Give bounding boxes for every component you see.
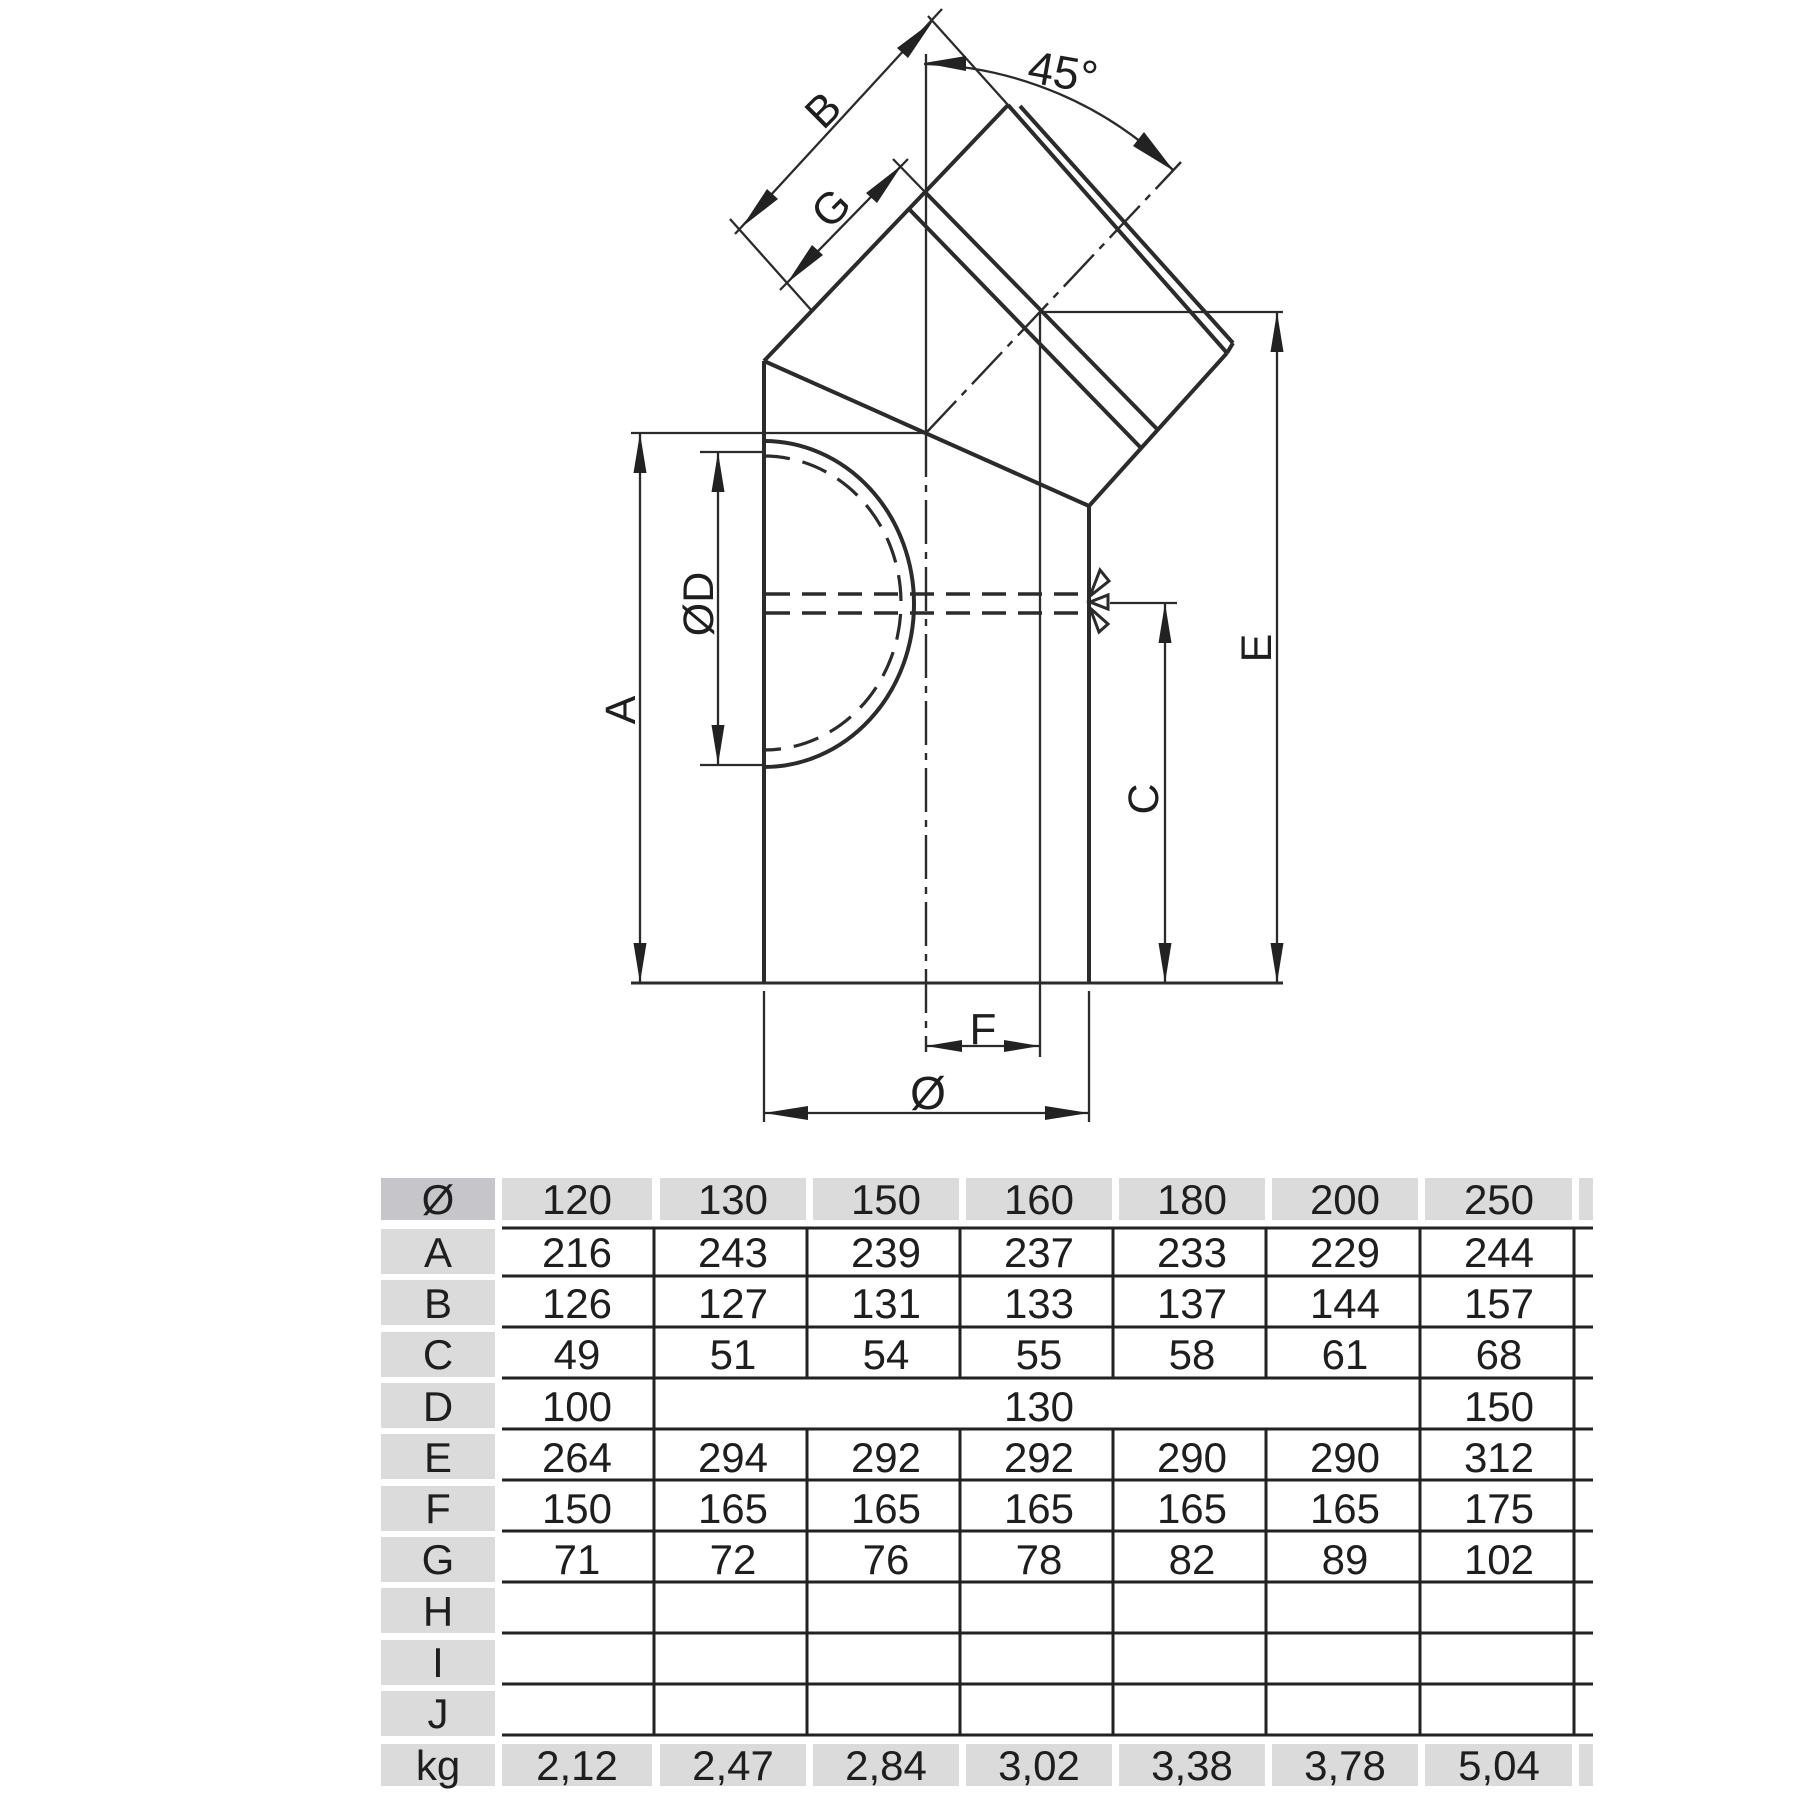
svg-text:237: 237 [1004,1229,1074,1276]
svg-text:68: 68 [1476,1331,1523,1378]
svg-text:144: 144 [1310,1280,1380,1327]
svg-text:5,04: 5,04 [1458,1742,1540,1789]
svg-text:3,02: 3,02 [998,1742,1080,1789]
svg-text:78: 78 [1016,1536,1063,1583]
svg-text:ØD: ØD [675,572,723,637]
svg-text:2,84: 2,84 [845,1742,927,1789]
svg-text:B: B [424,1280,452,1327]
svg-text:F: F [425,1485,451,1532]
svg-text:E: E [424,1434,452,1481]
svg-text:292: 292 [851,1434,921,1481]
svg-text:Ø: Ø [910,1067,946,1119]
svg-text:100: 100 [542,1383,612,1430]
svg-text:72: 72 [710,1536,757,1583]
svg-text:200: 200 [1310,1176,1380,1223]
svg-text:C: C [423,1331,453,1378]
svg-text:290: 290 [1310,1434,1380,1481]
svg-text:71: 71 [554,1536,601,1583]
svg-text:130: 130 [1004,1383,1074,1430]
svg-text:49: 49 [554,1331,601,1378]
svg-text:175: 175 [1464,1485,1534,1532]
svg-text:250: 250 [1464,1176,1534,1223]
svg-text:233: 233 [1157,1229,1227,1276]
svg-text:229: 229 [1310,1229,1380,1276]
svg-text:165: 165 [1157,1485,1227,1532]
svg-text:I: I [432,1639,444,1686]
svg-text:3,38: 3,38 [1151,1742,1233,1789]
svg-text:157: 157 [1464,1280,1534,1327]
svg-text:2,12: 2,12 [536,1742,618,1789]
svg-text:89: 89 [1322,1536,1369,1583]
svg-text:150: 150 [1464,1383,1534,1430]
svg-text:127: 127 [698,1280,768,1327]
svg-text:Ø: Ø [422,1176,455,1223]
svg-text:130: 130 [698,1176,768,1223]
svg-text:180: 180 [1157,1176,1227,1223]
svg-text:A: A [597,695,645,724]
svg-text:165: 165 [698,1485,768,1532]
svg-text:239: 239 [851,1229,921,1276]
svg-text:61: 61 [1322,1331,1369,1378]
svg-text:312: 312 [1464,1434,1534,1481]
svg-text:133: 133 [1004,1280,1074,1327]
svg-text:137: 137 [1157,1280,1227,1327]
svg-text:3,78: 3,78 [1304,1742,1386,1789]
svg-text:131: 131 [851,1280,921,1327]
svg-text:216: 216 [542,1229,612,1276]
svg-text:E: E [1233,634,1281,663]
svg-text:kg: kg [416,1742,460,1789]
svg-text:150: 150 [851,1176,921,1223]
svg-text:120: 120 [542,1176,612,1223]
svg-text:58: 58 [1169,1331,1216,1378]
svg-text:54: 54 [863,1331,910,1378]
svg-text:165: 165 [1310,1485,1380,1532]
svg-text:82: 82 [1169,1536,1216,1583]
svg-text:126: 126 [542,1280,612,1327]
svg-text:243: 243 [698,1229,768,1276]
svg-text:165: 165 [1004,1485,1074,1532]
svg-text:55: 55 [1016,1331,1063,1378]
svg-text:C: C [1120,783,1168,814]
svg-text:G: G [422,1536,455,1583]
svg-text:150: 150 [542,1485,612,1532]
svg-text:76: 76 [863,1536,910,1583]
svg-text:290: 290 [1157,1434,1227,1481]
svg-text:J: J [428,1690,449,1737]
svg-text:F: F [970,1005,997,1054]
svg-text:2,47: 2,47 [692,1742,774,1789]
svg-text:A: A [424,1229,452,1276]
svg-text:H: H [423,1588,453,1635]
svg-text:294: 294 [698,1434,768,1481]
svg-text:292: 292 [1004,1434,1074,1481]
svg-text:102: 102 [1464,1536,1534,1583]
svg-text:51: 51 [710,1331,757,1378]
svg-text:264: 264 [542,1434,612,1481]
svg-text:160: 160 [1004,1176,1074,1223]
svg-text:D: D [423,1383,453,1430]
svg-text:244: 244 [1464,1229,1534,1276]
svg-text:165: 165 [851,1485,921,1532]
